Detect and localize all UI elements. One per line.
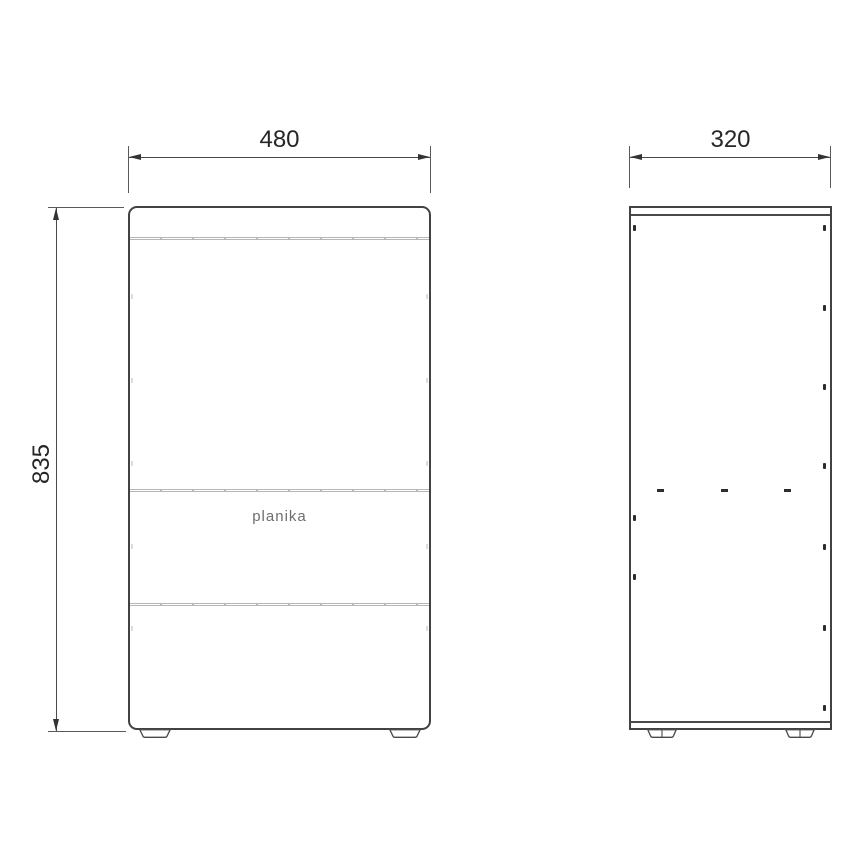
front-left-foot [139,729,171,739]
dimension-line-front-height [56,208,57,731]
front-right-foot [389,729,421,739]
side-top-panel-line [631,214,830,216]
front-edge-mark [131,294,133,299]
technical-drawing-canvas: planika 480 320 835 [0,0,868,868]
dimension-arrow-icon [630,154,642,160]
dimension-label-front-height: 835 [29,424,55,504]
front-edge-mark [131,461,133,466]
dimension-label-front-width: 480 [128,127,431,153]
front-view-outline [128,206,431,730]
dimension-line-front-width [129,157,430,158]
side-weld-dash [784,489,791,492]
side-screw-mark [823,625,826,631]
side-screw-mark [823,705,826,711]
extension-line [430,146,431,193]
side-weld-dash [721,489,728,492]
dimension-arrow-icon [418,154,430,160]
front-edge-mark [131,378,133,383]
front-edge-mark [426,626,428,631]
dimension-arrow-icon [53,719,59,731]
dimension-arrow-icon [53,208,59,220]
side-view-outline [629,206,832,730]
side-left-foot [647,729,677,739]
side-screw-mark [823,225,826,231]
side-screw-mark [633,515,636,521]
dimension-arrow-icon [818,154,830,160]
front-edge-mark [426,544,428,549]
extension-line [48,207,124,208]
brand-logo-text: planika [128,508,431,526]
extension-line [48,731,126,732]
front-edge-mark [426,294,428,299]
side-screw-mark [633,574,636,580]
front-lower-seam-line [130,603,429,606]
side-screw-mark [823,463,826,469]
dimension-arrow-icon [129,154,141,160]
extension-line [830,146,831,188]
side-right-foot [785,729,815,739]
dimension-line-side-depth [630,157,831,158]
side-screw-mark [823,384,826,390]
extension-line [629,146,630,188]
side-bottom-panel-line [631,721,830,723]
side-screw-mark [823,305,826,311]
side-screw-mark [633,225,636,231]
front-top-seam-line [130,237,429,240]
front-edge-mark [131,544,133,549]
front-middle-seam-line [130,489,429,492]
front-edge-mark [426,461,428,466]
side-screw-mark [823,544,826,550]
dimension-label-side-depth: 320 [629,127,832,153]
front-edge-mark [426,378,428,383]
front-edge-mark [131,626,133,631]
side-weld-dash [657,489,664,492]
